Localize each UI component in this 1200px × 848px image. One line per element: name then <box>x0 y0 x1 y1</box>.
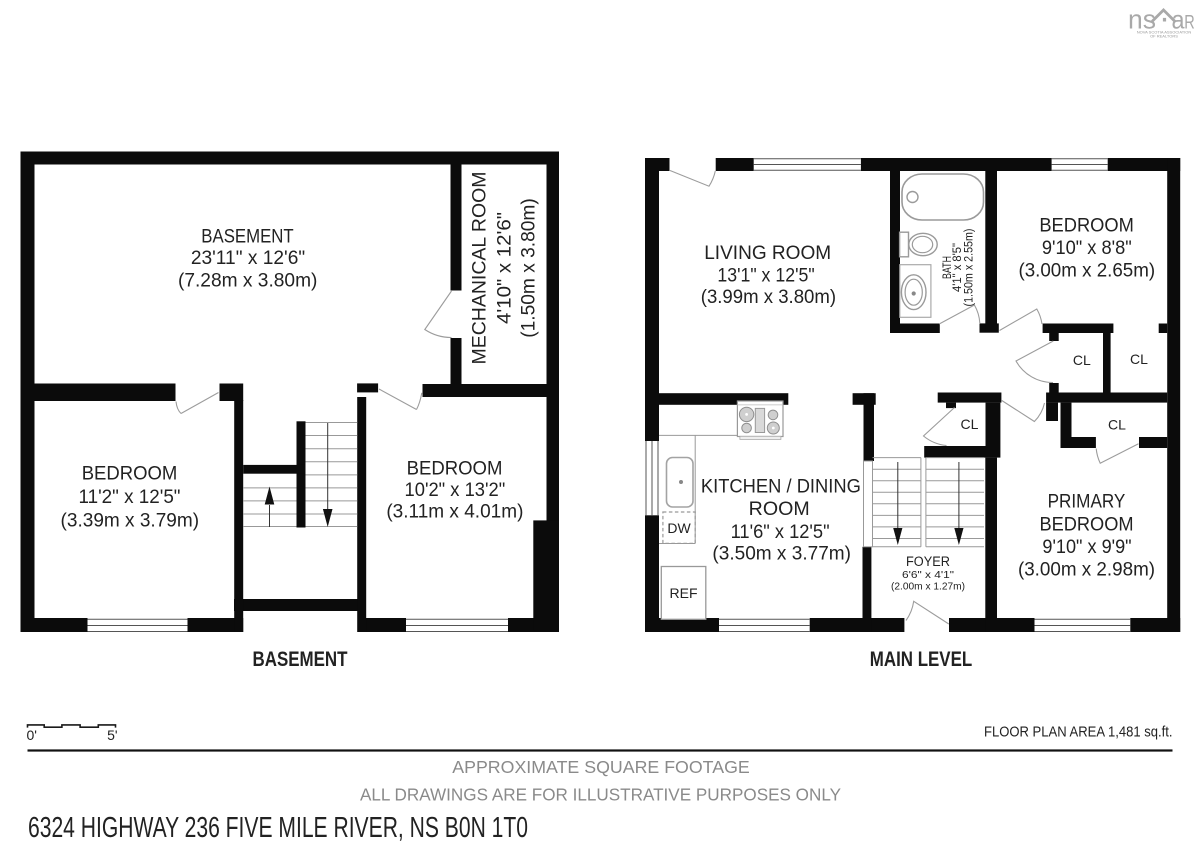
svg-text:BASEMENT: BASEMENT <box>201 226 293 248</box>
svg-text:(3.11m x 4.01m): (3.11m x 4.01m) <box>386 501 523 523</box>
svg-text:MAIN LEVEL: MAIN LEVEL <box>870 648 973 671</box>
svg-text:BEDROOM: BEDROOM <box>1039 514 1133 536</box>
svg-text:5': 5' <box>107 727 117 743</box>
svg-text:11'2" x 12'5": 11'2" x 12'5" <box>79 486 181 508</box>
svg-text:KITCHEN / DINING: KITCHEN / DINING <box>701 476 861 498</box>
svg-text:(1.50m x 2.55m): (1.50m x 2.55m) <box>963 228 975 306</box>
svg-text:BEDROOM: BEDROOM <box>407 458 503 480</box>
svg-text:OF REALTORS: OF REALTORS <box>1150 34 1178 39</box>
svg-text:(3.99m x 3.80m): (3.99m x 3.80m) <box>701 286 836 308</box>
svg-text:9'10" x 9'9": 9'10" x 9'9" <box>1042 536 1131 558</box>
svg-text:MECHANICAL ROOM: MECHANICAL ROOM <box>469 172 491 365</box>
svg-text:(1.50m x 3.80m): (1.50m x 3.80m) <box>517 198 539 338</box>
svg-text:(3.00m x 2.98m): (3.00m x 2.98m) <box>1018 558 1155 580</box>
svg-text:0': 0' <box>27 727 37 743</box>
svg-text:(7.28m x 3.80m): (7.28m x 3.80m) <box>178 269 318 291</box>
svg-text:4'10" x 12'6": 4'10" x 12'6" <box>494 212 516 324</box>
svg-text:11'6" x 12'5": 11'6" x 12'5" <box>731 521 830 543</box>
svg-text:6324 HIGHWAY 236 FIVE MILE RIV: 6324 HIGHWAY 236 FIVE MILE RIVER, NS B0N… <box>28 812 528 844</box>
svg-text:FOYER: FOYER <box>906 554 950 569</box>
svg-text:(3.39m x 3.79m): (3.39m x 3.79m) <box>61 509 200 531</box>
svg-text:23'11" x 12'6": 23'11" x 12'6" <box>191 247 305 269</box>
svg-text:REF: REF <box>670 585 698 601</box>
svg-text:FLOOR PLAN AREA 1,481 sq.ft.: FLOOR PLAN AREA 1,481 sq.ft. <box>984 725 1173 741</box>
svg-text:CL: CL <box>961 416 979 432</box>
svg-text:4'1" x 8'5": 4'1" x 8'5" <box>952 243 964 292</box>
svg-text:PRIMARY: PRIMARY <box>1048 491 1126 513</box>
svg-text:(3.00m x 2.65m): (3.00m x 2.65m) <box>1018 259 1155 281</box>
svg-text:(2.00m x 1.27m): (2.00m x 1.27m) <box>891 580 965 592</box>
svg-text:6'6" x 4'1": 6'6" x 4'1" <box>902 569 954 581</box>
svg-text:CL: CL <box>1108 417 1126 433</box>
svg-text:13'1" x 12'5": 13'1" x 12'5" <box>717 265 814 287</box>
svg-text:CL: CL <box>1073 352 1091 368</box>
svg-text:9'10" x 8'8": 9'10" x 8'8" <box>1042 237 1132 259</box>
svg-text:APPROXIMATE SQUARE FOOTAGE: APPROXIMATE SQUARE FOOTAGE <box>452 757 750 777</box>
svg-text:10'2" x 13'2": 10'2" x 13'2" <box>405 479 506 501</box>
svg-text:BEDROOM: BEDROOM <box>1039 215 1134 237</box>
svg-text:(3.50m x 3.77m): (3.50m x 3.77m) <box>712 543 851 565</box>
svg-text:LIVING ROOM: LIVING ROOM <box>704 242 831 264</box>
svg-text:DW: DW <box>667 520 691 536</box>
svg-text:ROOM: ROOM <box>749 498 810 520</box>
svg-text:BEDROOM: BEDROOM <box>82 463 178 485</box>
svg-text:CL: CL <box>1130 351 1148 367</box>
svg-text:ALL DRAWINGS ARE FOR ILLUSTRAT: ALL DRAWINGS ARE FOR ILLUSTRATIVE PURPOS… <box>360 785 841 805</box>
svg-text:BASEMENT: BASEMENT <box>253 648 348 671</box>
